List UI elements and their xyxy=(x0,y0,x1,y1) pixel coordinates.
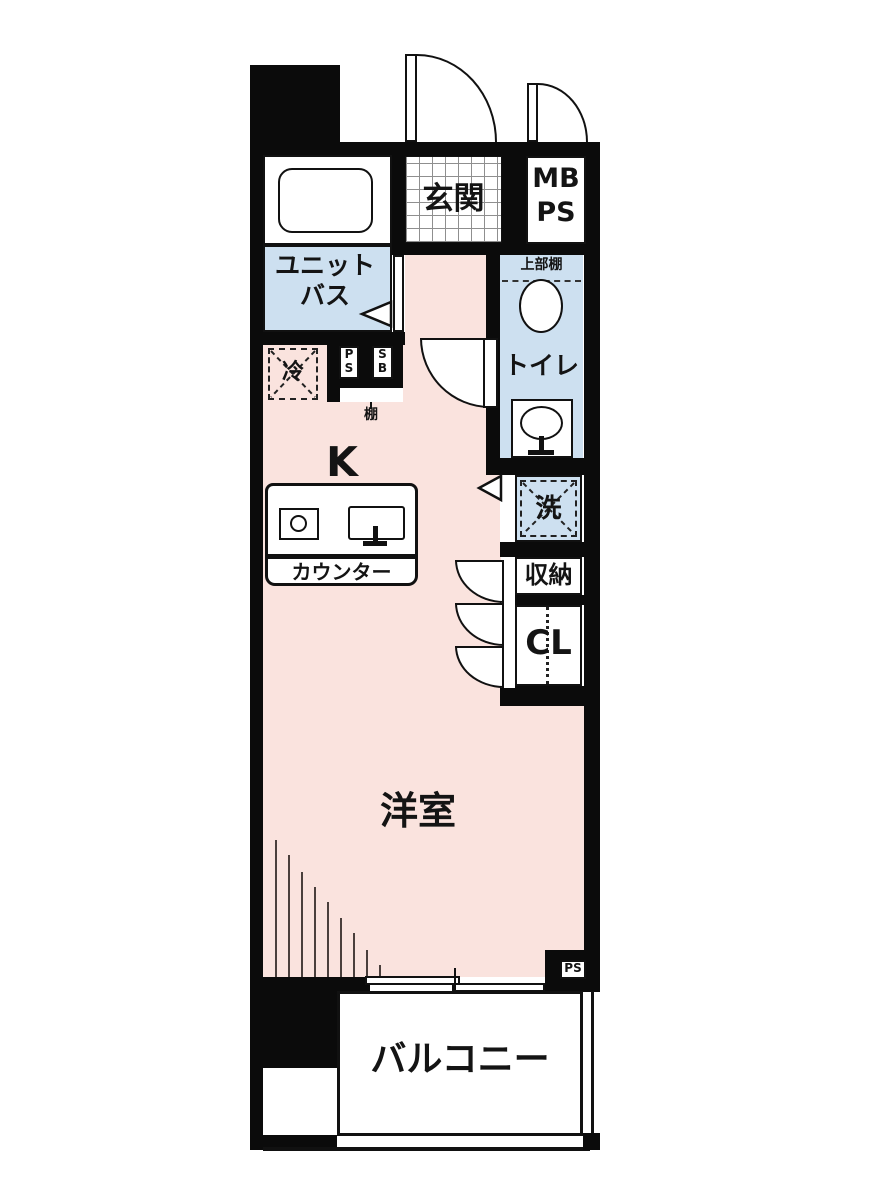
counter-label: カウンター xyxy=(265,561,418,583)
fan-line-2 xyxy=(288,855,290,977)
shelf-label: 棚 xyxy=(352,408,390,424)
shutter-box-letter-b: B xyxy=(372,362,393,375)
wall-under-entrance xyxy=(405,243,600,255)
meter-box-door-leaf xyxy=(527,83,538,142)
wall-closet-bottom xyxy=(500,686,600,706)
wall-top xyxy=(250,142,600,156)
meter-box-label-line2: PS xyxy=(526,198,586,228)
shelf-notch xyxy=(340,388,403,402)
closet-label: CL xyxy=(515,624,582,662)
toilet-door-leaf xyxy=(483,338,498,408)
shutter-box-letter-s: S xyxy=(372,348,393,361)
balcony-outer-right-line xyxy=(591,991,594,1150)
fan-line-3 xyxy=(301,872,303,977)
balcony-label: バルコニー xyxy=(352,1040,568,1080)
pipe-shaft-letter-s: S xyxy=(339,362,359,375)
fan-line-1 xyxy=(275,840,277,977)
pipe-space-bottom-label: PS xyxy=(560,962,586,975)
bathtub-icon xyxy=(278,168,373,233)
fan-line-7 xyxy=(353,933,355,977)
toilet-bowl-icon xyxy=(519,279,563,333)
wall-entrance-mbps-divider xyxy=(502,156,526,255)
bath-door-leaf xyxy=(393,255,404,332)
wall-balcony-bottom-right-square xyxy=(583,1133,600,1150)
toilet-sink-basin-icon xyxy=(520,406,563,440)
hallway-floor xyxy=(405,255,486,345)
fridge-label: 冷 xyxy=(268,361,318,386)
unit-bath-label-line1: ユニット xyxy=(266,252,384,280)
western-room-label: 洋室 xyxy=(330,790,506,833)
washer-label: 洗 xyxy=(515,495,582,524)
toilet-sink-faucet-base xyxy=(528,450,554,455)
fan-line-6 xyxy=(340,918,342,977)
floorplan: ユニット バス 玄関 MB PS 上部棚 トイレ 冷 P S S B 棚 K xyxy=(0,0,880,1200)
meter-box-door-swing-arc xyxy=(538,83,588,142)
meter-box-label-line1: MB xyxy=(526,164,586,194)
wall-right xyxy=(584,142,600,992)
fan-line-8 xyxy=(366,950,368,977)
entrance-label: 玄関 xyxy=(405,182,502,217)
entrance-door-leaf xyxy=(405,54,417,142)
toilet-upper-shelf-label: 上部棚 xyxy=(500,258,583,274)
kitchen-label: K xyxy=(318,440,366,486)
balcony-outer-bottom-line xyxy=(263,1147,590,1151)
fan-line-4 xyxy=(314,887,316,977)
washer-opening-chevron-icon xyxy=(476,472,504,504)
storage-label: 収納 xyxy=(515,562,582,589)
fan-line-5 xyxy=(327,902,329,977)
wall-balcony-left-chunk xyxy=(252,977,337,1068)
wall-storage-bottom xyxy=(500,595,600,605)
sink-faucet-base xyxy=(363,541,387,546)
stove-burner-icon xyxy=(290,515,307,532)
balcony-window-pane-left xyxy=(365,976,460,985)
entrance-door-swing-arc xyxy=(417,54,497,142)
wall-washer-bottom xyxy=(500,542,600,557)
bath-door-chevron-icon xyxy=(358,296,394,332)
toilet-label: トイレ xyxy=(500,352,583,380)
wall-bath-entrance-divider xyxy=(392,156,405,255)
room-floor-right xyxy=(502,700,584,977)
pipe-shaft-letter-p: P xyxy=(339,348,359,361)
